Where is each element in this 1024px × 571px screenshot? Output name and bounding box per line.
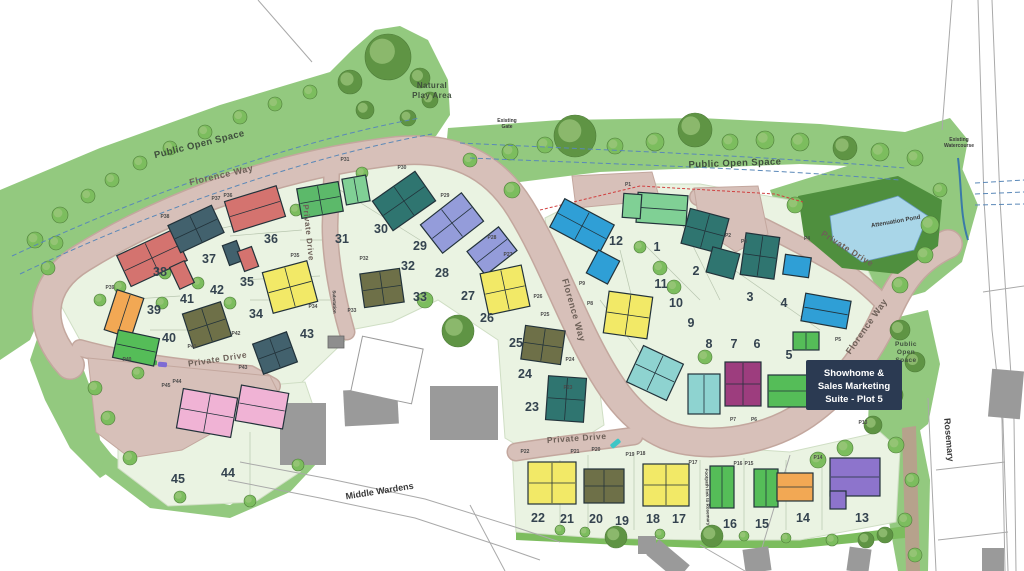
plot-ref-P36: P36 bbox=[224, 193, 233, 199]
tree-highlight bbox=[654, 262, 662, 270]
plot-number-25: 25 bbox=[509, 336, 523, 350]
existing-building bbox=[280, 403, 326, 465]
existing-building bbox=[846, 547, 871, 571]
tree-highlight bbox=[234, 111, 242, 119]
plot-ref-P29: P29 bbox=[441, 193, 450, 199]
tree-highlight bbox=[50, 237, 58, 245]
house-plot-4 bbox=[783, 254, 812, 277]
tree-highlight bbox=[668, 281, 676, 289]
tree-highlight bbox=[293, 460, 300, 467]
plot-ref-P23: P23 bbox=[564, 385, 573, 391]
plot-number-17: 17 bbox=[672, 512, 686, 526]
tree-highlight bbox=[835, 138, 848, 151]
plot-ref-P18: P18 bbox=[637, 451, 646, 457]
tree-highlight bbox=[789, 199, 798, 208]
plot-number-12: 12 bbox=[609, 234, 623, 248]
plot-number-18: 18 bbox=[646, 512, 660, 526]
plot-ref-P4: P4 bbox=[804, 236, 810, 242]
plot-number-36: 36 bbox=[264, 232, 278, 246]
tree-highlight bbox=[581, 528, 587, 534]
tree-highlight bbox=[106, 174, 114, 182]
substation-box bbox=[328, 336, 344, 348]
car bbox=[158, 362, 167, 368]
tree-highlight bbox=[607, 528, 619, 540]
plot-number-30: 30 bbox=[374, 222, 388, 236]
plot-number-13: 13 bbox=[855, 511, 869, 525]
plot-ref-P19: P19 bbox=[626, 452, 635, 458]
plot-number-40: 40 bbox=[162, 331, 176, 345]
plot-ref-P31: P31 bbox=[341, 157, 350, 163]
tree-highlight bbox=[648, 135, 658, 145]
plot-ref-P22: P22 bbox=[521, 449, 530, 455]
plot-ref-P27: P27 bbox=[504, 252, 513, 258]
tree-highlight bbox=[839, 442, 848, 451]
tree-highlight bbox=[879, 529, 888, 538]
tree-highlight bbox=[919, 249, 928, 258]
plot-ref-P45: P45 bbox=[162, 383, 171, 389]
tree-highlight bbox=[539, 139, 548, 148]
plot-ref-P35: P35 bbox=[291, 253, 300, 259]
siteplan-canvas: Public Open SpaceFlorence WayNaturalPlay… bbox=[0, 0, 1024, 571]
plot-ref-P6: P6 bbox=[751, 417, 757, 423]
plot-number-26: 26 bbox=[480, 311, 494, 325]
plot-ref-P16: P16 bbox=[734, 461, 743, 467]
tree-highlight bbox=[827, 535, 834, 542]
plot-number-29: 29 bbox=[413, 239, 427, 253]
existing-building-outline bbox=[351, 336, 423, 404]
plot-ref-P5: P5 bbox=[835, 337, 841, 343]
plot-number-9: 9 bbox=[688, 316, 695, 330]
plot-ref-P17: P17 bbox=[689, 460, 698, 466]
plot-ref-P34: P34 bbox=[309, 304, 318, 310]
tree-highlight bbox=[402, 112, 411, 121]
plot-number-6: 6 bbox=[754, 337, 761, 351]
plot-ref-P21: P21 bbox=[571, 449, 580, 455]
plot-number-27: 27 bbox=[461, 289, 475, 303]
plot-ref-P25: P25 bbox=[541, 312, 550, 318]
showhome-callout-text: Sales Marketing bbox=[818, 381, 891, 392]
tree-highlight bbox=[873, 145, 883, 155]
tree-highlight bbox=[445, 318, 463, 336]
siteplan-svg: Public Open SpaceFlorence WayNaturalPlay… bbox=[0, 0, 1024, 571]
plot-number-4: 4 bbox=[781, 296, 788, 310]
plot-ref-P3: P3 bbox=[741, 239, 747, 245]
tree-highlight bbox=[54, 209, 63, 218]
tree-highlight bbox=[558, 119, 581, 142]
tree-highlight bbox=[199, 126, 207, 134]
plot-ref-P26: P26 bbox=[534, 294, 543, 300]
plot-ref-P44: P44 bbox=[173, 379, 182, 385]
tree-highlight bbox=[269, 98, 277, 106]
existing-building bbox=[982, 548, 1004, 571]
plot-ref-P8: P8 bbox=[587, 301, 593, 307]
label-substation: Substation bbox=[332, 290, 338, 314]
plot-number-44: 44 bbox=[221, 466, 235, 480]
existing-boundary-line bbox=[936, 462, 1005, 470]
existing-building bbox=[430, 386, 498, 440]
plot-number-32: 32 bbox=[401, 259, 415, 273]
tree-highlight bbox=[370, 39, 395, 64]
existing-boundary-line bbox=[258, 0, 312, 62]
tree-highlight bbox=[609, 140, 618, 149]
existing-building bbox=[988, 369, 1024, 420]
plot-ref-P20: P20 bbox=[592, 447, 601, 453]
tree-highlight bbox=[793, 135, 803, 145]
tree-highlight bbox=[909, 152, 918, 161]
tree-highlight bbox=[556, 526, 562, 532]
showhome-callout-text: Showhome & bbox=[824, 368, 884, 379]
plot-number-43: 43 bbox=[300, 327, 314, 341]
existing-boundary-line bbox=[978, 0, 1005, 571]
plot-number-20: 20 bbox=[589, 512, 603, 526]
tree-highlight bbox=[504, 146, 513, 155]
tree-highlight bbox=[412, 70, 423, 81]
drainage-line bbox=[975, 204, 1024, 205]
house-plot-13 bbox=[830, 491, 846, 509]
plot-number-38: 38 bbox=[153, 265, 167, 279]
tree-highlight bbox=[29, 234, 38, 243]
tree-highlight bbox=[134, 157, 142, 165]
tree-highlight bbox=[906, 474, 914, 482]
plot-number-16: 16 bbox=[723, 517, 737, 531]
plot-ref-P40: P40 bbox=[123, 357, 132, 363]
existing-boundary-line bbox=[700, 545, 745, 571]
tree-highlight bbox=[506, 184, 515, 193]
house-plot-1 bbox=[622, 193, 642, 218]
plot-number-41: 41 bbox=[180, 292, 194, 306]
plot-number-5: 5 bbox=[786, 348, 793, 362]
tree-highlight bbox=[740, 532, 746, 538]
tree-highlight bbox=[89, 382, 97, 390]
tree-highlight bbox=[340, 72, 353, 85]
tree-highlight bbox=[635, 242, 642, 249]
plot-number-7: 7 bbox=[731, 337, 738, 351]
tree-highlight bbox=[699, 351, 707, 359]
tree-highlight bbox=[102, 412, 110, 420]
plot-ref-P13: P13 bbox=[859, 420, 868, 426]
plot-ref-P28: P28 bbox=[488, 235, 497, 241]
tree-highlight bbox=[115, 282, 122, 289]
plot-ref-P39: P39 bbox=[106, 285, 115, 291]
tree-highlight bbox=[225, 298, 232, 305]
plot-number-28: 28 bbox=[435, 266, 449, 280]
tree-highlight bbox=[724, 136, 733, 145]
tree-highlight bbox=[357, 168, 364, 175]
plot-ref-P41: P41 bbox=[188, 344, 197, 350]
tree-highlight bbox=[899, 514, 907, 522]
plot-ref-P32: P32 bbox=[360, 256, 369, 262]
tree-highlight bbox=[291, 205, 298, 212]
tree-highlight bbox=[860, 534, 869, 543]
tree-highlight bbox=[304, 86, 312, 94]
plot-ref-P33: P33 bbox=[348, 308, 357, 314]
tree-highlight bbox=[95, 295, 102, 302]
tree-highlight bbox=[175, 492, 182, 499]
plot-number-35: 35 bbox=[240, 275, 254, 289]
plot-ref-P37: P37 bbox=[212, 196, 221, 202]
tree-highlight bbox=[42, 262, 50, 270]
plot-number-2: 2 bbox=[693, 264, 700, 278]
tree-highlight bbox=[656, 530, 662, 536]
plot-ref-P24: P24 bbox=[566, 357, 575, 363]
tree-highlight bbox=[934, 184, 942, 192]
tree-highlight bbox=[245, 496, 252, 503]
tree-highlight bbox=[124, 452, 132, 460]
tree-highlight bbox=[358, 103, 368, 113]
plot-number-37: 37 bbox=[202, 252, 216, 266]
plot-number-21: 21 bbox=[560, 512, 574, 526]
plot-number-23: 23 bbox=[525, 400, 539, 414]
tree-highlight bbox=[758, 133, 768, 143]
tree-highlight bbox=[703, 527, 715, 539]
tree-highlight bbox=[894, 279, 903, 288]
plot-ref-P9: P9 bbox=[579, 281, 585, 287]
plot-number-3: 3 bbox=[747, 290, 754, 304]
plot-number-45: 45 bbox=[171, 472, 185, 486]
plot-number-33: 33 bbox=[413, 290, 427, 304]
label-natural-play-area: NaturalPlay Area bbox=[412, 81, 452, 100]
tree-highlight bbox=[909, 549, 917, 557]
existing-boundary-line bbox=[942, 0, 952, 130]
plot-ref-P42: P42 bbox=[232, 331, 241, 337]
plot-number-19: 19 bbox=[615, 514, 629, 528]
plot-number-14: 14 bbox=[796, 511, 810, 525]
existing-boundary-line bbox=[938, 532, 1008, 540]
tree-highlight bbox=[82, 190, 90, 198]
tree-highlight bbox=[782, 534, 788, 540]
tree-highlight bbox=[923, 218, 933, 228]
plot-number-15: 15 bbox=[755, 517, 769, 531]
tree-highlight bbox=[890, 439, 899, 448]
label-rosemary: Rosemary bbox=[942, 418, 956, 462]
existing-boundary-line bbox=[992, 0, 1016, 571]
plot-number-11: 11 bbox=[654, 277, 667, 291]
tree-highlight bbox=[133, 368, 140, 375]
plot-ref-P43: P43 bbox=[239, 365, 248, 371]
plot-number-10: 10 bbox=[669, 296, 683, 310]
plot-number-24: 24 bbox=[518, 367, 532, 381]
existing-building bbox=[742, 546, 771, 571]
plot-ref-P30: P30 bbox=[398, 165, 407, 171]
plot-number-42: 42 bbox=[210, 283, 224, 297]
plot-ref-P1: P1 bbox=[625, 182, 631, 188]
plot-ref-P2: P2 bbox=[725, 233, 731, 239]
plot-number-34: 34 bbox=[249, 307, 263, 321]
plot-ref-P7: P7 bbox=[730, 417, 736, 423]
label-public-open-space-top-right: Public Open Space bbox=[688, 156, 781, 170]
showhome-callout-text: Suite - Plot 5 bbox=[825, 394, 883, 405]
plot-number-31: 31 bbox=[335, 232, 349, 246]
plot-number-1: 1 bbox=[654, 240, 661, 254]
plot-number-22: 22 bbox=[531, 511, 545, 525]
plot-number-8: 8 bbox=[706, 337, 713, 351]
plot-ref-P38: P38 bbox=[161, 214, 170, 220]
tree-highlight bbox=[892, 322, 903, 333]
plot-number-39: 39 bbox=[147, 303, 161, 317]
plot-ref-P15: P15 bbox=[745, 461, 754, 467]
label-existing-watercourse: ExistingWatercourse bbox=[944, 137, 974, 149]
plot-ref-P14: P14 bbox=[814, 455, 823, 461]
tree-highlight bbox=[681, 116, 700, 135]
